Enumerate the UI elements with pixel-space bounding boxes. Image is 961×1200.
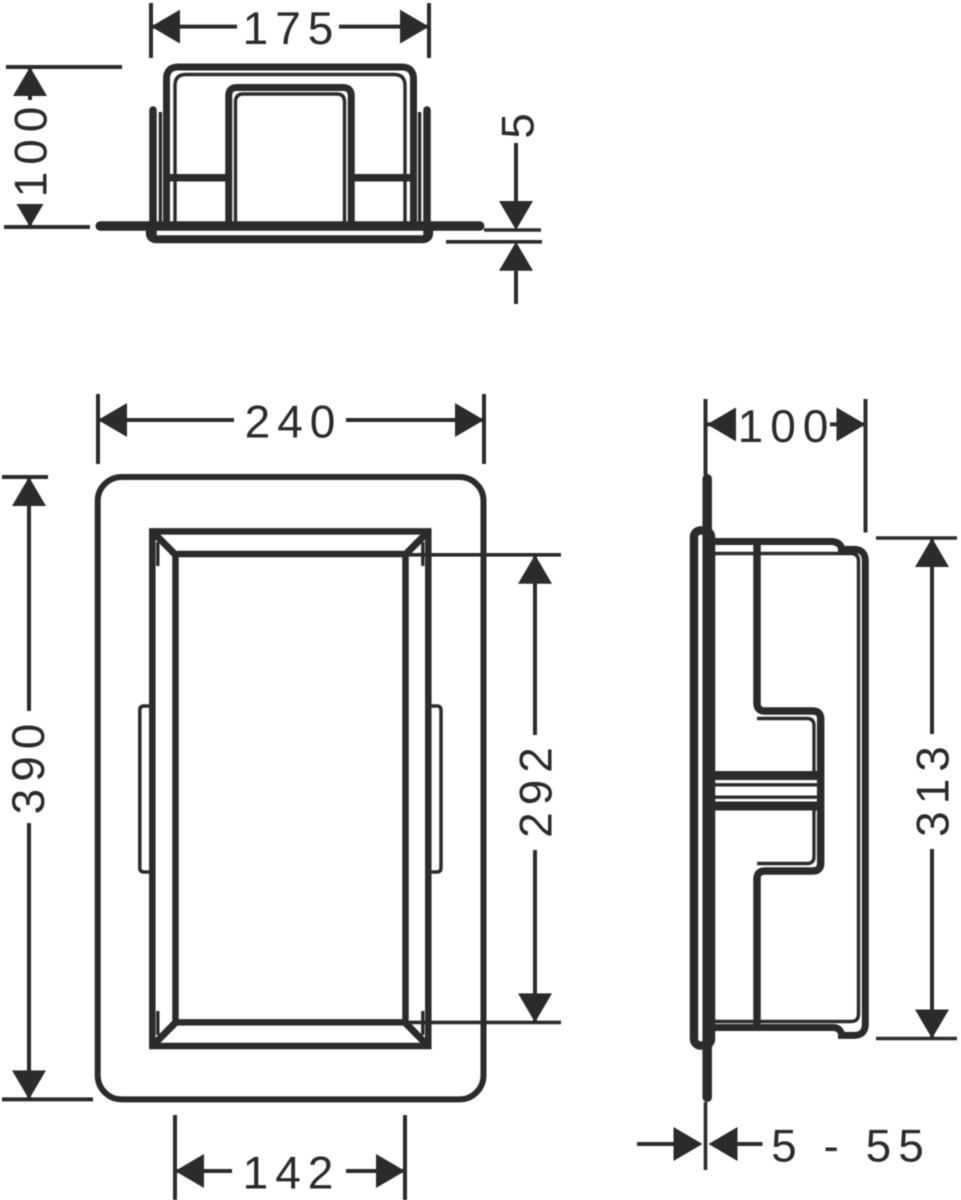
svg-text:5: 5 — [491, 106, 543, 139]
svg-text:142: 142 — [243, 1146, 341, 1198]
svg-text:313: 313 — [906, 739, 958, 837]
svg-text:240: 240 — [245, 395, 343, 447]
svg-text:5 - 55: 5 - 55 — [771, 1119, 931, 1171]
svg-text:390: 390 — [2, 717, 54, 815]
svg-text:100: 100 — [738, 400, 836, 452]
svg-text:100: 100 — [4, 100, 56, 198]
svg-text:175: 175 — [243, 2, 341, 54]
svg-text:292: 292 — [509, 740, 561, 838]
